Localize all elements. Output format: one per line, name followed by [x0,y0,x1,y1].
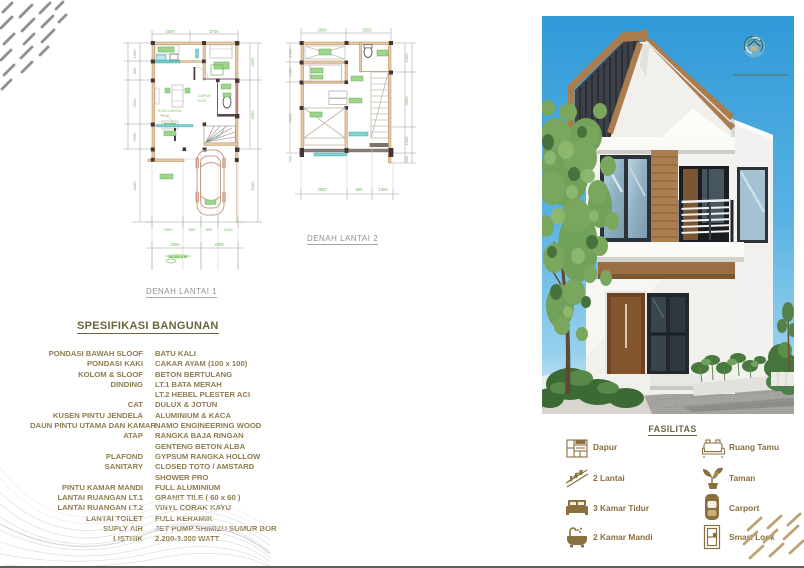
svg-text:1300: 1300 [378,187,388,192]
svg-text:1500: 1500 [288,48,293,58]
svg-text:2000: 2000 [164,227,174,232]
svg-text:1000: 1000 [224,227,234,232]
svg-text:JALAN 6 M: JALAN 6 M [168,255,187,259]
svg-text:3650: 3650 [250,57,255,67]
svg-text:2500: 2500 [317,187,327,192]
svg-text:900: 900 [356,187,364,192]
svg-text:600: 600 [189,227,196,232]
svg-text:+0.00: +0.00 [160,114,169,118]
svg-text:2950: 2950 [132,132,137,142]
svg-text:1500: 1500 [404,53,409,63]
svg-text:5400: 5400 [250,181,255,191]
svg-text:500: 500 [288,155,293,162]
svg-text:R.KELUARGA: R.KELUARGA [158,109,182,113]
svg-text:2500: 2500 [362,28,372,33]
svg-text:4000: 4000 [288,113,293,123]
svg-text:2700: 2700 [209,29,219,34]
svg-text:3000: 3000 [404,96,409,106]
svg-text:+0.00: +0.00 [197,99,206,103]
svg-text:2500: 2500 [317,28,327,33]
svg-text:4000: 4000 [250,110,255,120]
svg-text:1000: 1000 [132,49,137,59]
svg-text:DAPUR: DAPUR [198,94,211,98]
svg-text:1600: 1600 [288,67,293,77]
svg-text:3600: 3600 [170,242,180,247]
svg-text:450: 450 [132,67,137,74]
svg-text:2500: 2500 [165,29,175,34]
svg-text:1300: 1300 [404,136,409,146]
svg-text:2400: 2400 [214,242,224,247]
svg-text:800: 800 [206,227,213,232]
svg-text:500: 500 [404,155,409,162]
svg-text:4400: 4400 [132,181,137,191]
svg-text:2500: 2500 [132,98,137,108]
